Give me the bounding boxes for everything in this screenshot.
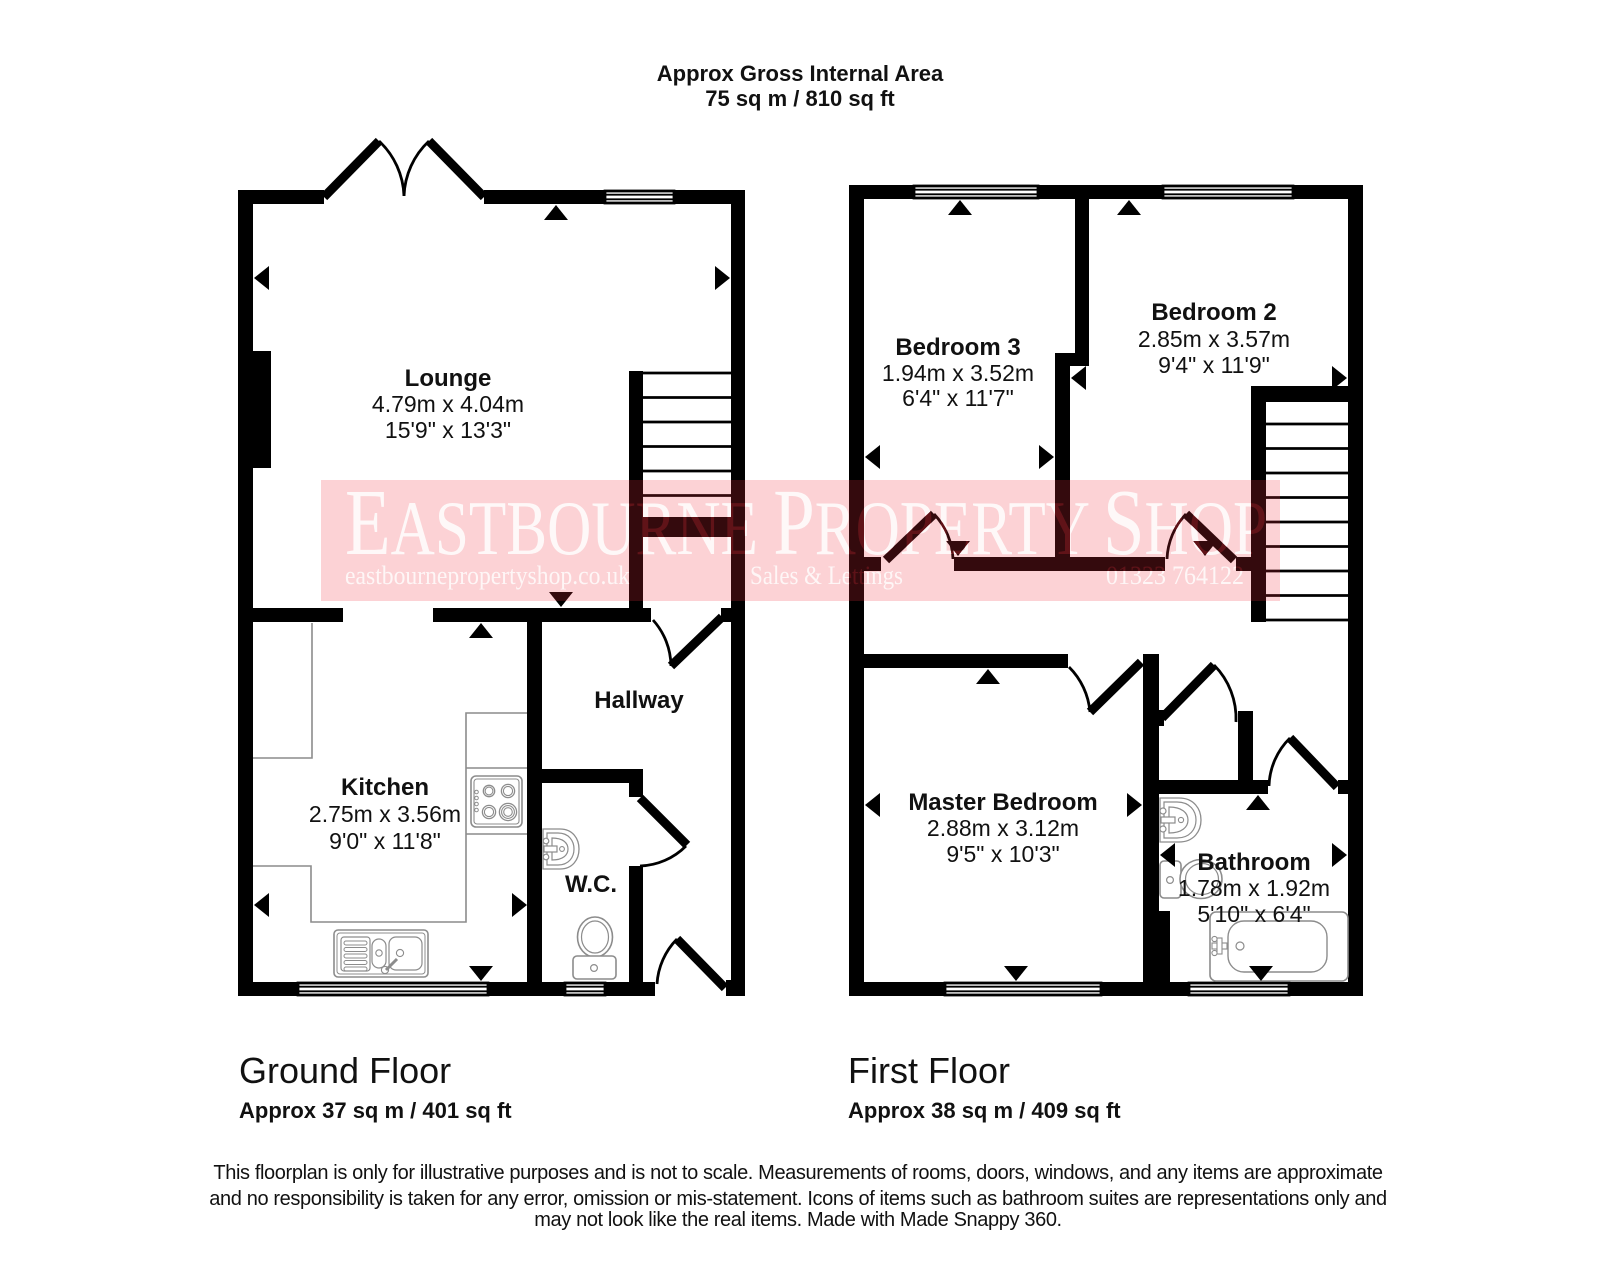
svg-text:eastbournepropertyshop.co.uk: eastbournepropertyshop.co.uk xyxy=(345,561,630,590)
svg-text:and no responsibility is taken: and no responsibility is taken for any e… xyxy=(209,1188,1386,1210)
svg-text:Hallway: Hallway xyxy=(594,687,684,714)
svg-text:First Floor: First Floor xyxy=(848,1050,1010,1091)
svg-text:2.75m x 3.56m: 2.75m x 3.56m xyxy=(309,801,461,827)
svg-text:Approx 37 sq m / 401 sq ft: Approx 37 sq m / 401 sq ft xyxy=(239,1098,512,1123)
svg-text:Bedroom 2: Bedroom 2 xyxy=(1151,299,1276,326)
svg-text:Master Bedroom: Master Bedroom xyxy=(908,789,1097,816)
svg-text:Bathroom: Bathroom xyxy=(1197,849,1310,876)
svg-text:EASTBOURNE PROPERTY SHOP: EASTBOURNE PROPERTY SHOP xyxy=(345,471,1267,575)
svg-text:9'5" x 10'3": 9'5" x 10'3" xyxy=(946,841,1059,867)
svg-text:Approx Gross Internal Area: Approx Gross Internal Area xyxy=(657,61,944,86)
svg-text:Lounge: Lounge xyxy=(405,365,492,392)
svg-text:9'0" x 11'8": 9'0" x 11'8" xyxy=(329,828,441,854)
svg-text:2.88m x 3.12m: 2.88m x 3.12m xyxy=(927,815,1079,841)
svg-text:Kitchen: Kitchen xyxy=(341,774,429,801)
svg-text:15'9" x 13'3": 15'9" x 13'3" xyxy=(385,417,511,443)
svg-text:6'4" x 11'7": 6'4" x 11'7" xyxy=(902,385,1014,411)
svg-text:75 sq m / 810 sq ft: 75 sq m / 810 sq ft xyxy=(705,86,895,111)
svg-text:5'10" x 6'4": 5'10" x 6'4" xyxy=(1197,901,1310,927)
svg-text:Ground Floor: Ground Floor xyxy=(239,1050,451,1091)
svg-text:1.94m x 3.52m: 1.94m x 3.52m xyxy=(882,360,1034,386)
svg-text:Approx 38 sq m / 409 sq ft: Approx 38 sq m / 409 sq ft xyxy=(848,1098,1121,1123)
svg-text:1.78m x 1.92m: 1.78m x 1.92m xyxy=(1178,875,1330,901)
svg-text:Bedroom 3: Bedroom 3 xyxy=(895,334,1020,361)
svg-text:W.C.: W.C. xyxy=(565,871,617,898)
svg-text:4.79m x 4.04m: 4.79m x 4.04m xyxy=(372,391,524,417)
svg-text:Sales & Lettings: Sales & Lettings xyxy=(750,561,903,590)
svg-text:01323 764122: 01323 764122 xyxy=(1106,561,1244,590)
svg-text:9'4" x 11'9": 9'4" x 11'9" xyxy=(1158,352,1270,378)
svg-text:2.85m x 3.57m: 2.85m x 3.57m xyxy=(1138,326,1290,352)
svg-text:This floorplan is only for ill: This floorplan is only for illustrative … xyxy=(213,1162,1382,1184)
svg-text:may not look like the real ite: may not look like the real items. Made w… xyxy=(534,1209,1061,1231)
